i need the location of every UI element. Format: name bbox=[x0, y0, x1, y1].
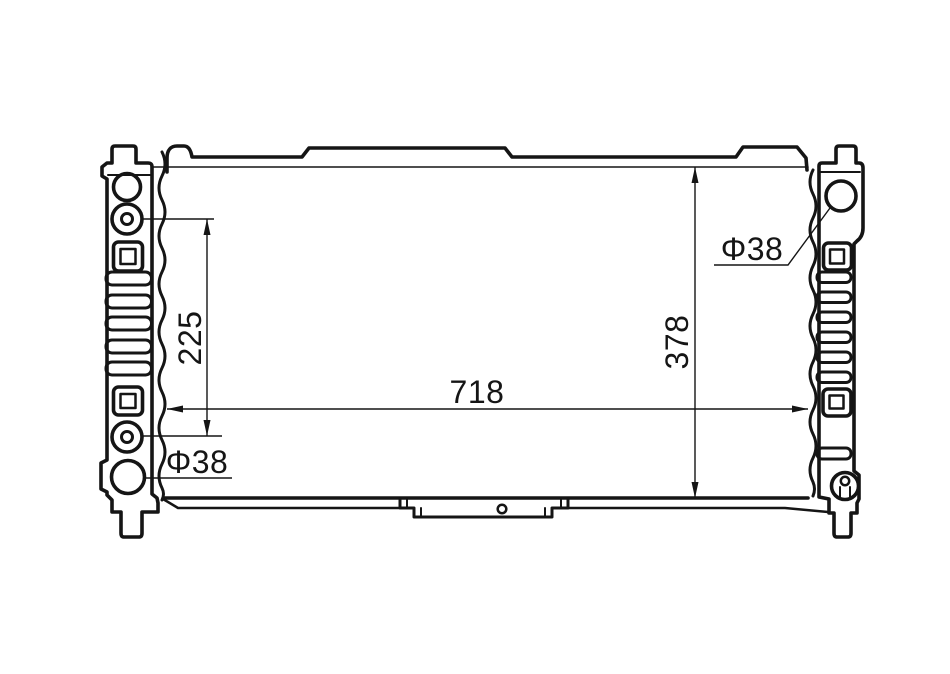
left-lower-fitting bbox=[114, 387, 143, 415]
filler-port-circle bbox=[114, 174, 141, 201]
left-upper-fitting bbox=[114, 242, 143, 271]
arrow-down-icon bbox=[204, 420, 211, 436]
arrow-up-icon bbox=[692, 167, 699, 183]
dimension-225: 225 bbox=[143, 219, 222, 436]
dimension-378: 378 bbox=[659, 167, 699, 498]
left-tank-rib bbox=[106, 362, 152, 375]
left-upper-port-inner bbox=[122, 214, 133, 225]
right-tank-rib bbox=[817, 272, 851, 283]
left-lower-fitting-inner bbox=[121, 394, 136, 408]
right-tank-rib bbox=[817, 312, 851, 323]
left-tank-rib bbox=[106, 272, 152, 285]
left-tank-rib bbox=[106, 317, 152, 330]
dim-label-378: 378 bbox=[659, 315, 695, 370]
drain-cock-inner bbox=[841, 477, 849, 485]
right-tank-rib bbox=[817, 332, 851, 343]
right-lower-fitting bbox=[823, 389, 851, 416]
right-tank-rib bbox=[817, 292, 851, 303]
left-tank-rib bbox=[106, 295, 152, 308]
left-outlet-port bbox=[112, 461, 145, 494]
core-bottom-plate bbox=[163, 499, 828, 512]
dim-label-phi38-upper: Φ38 bbox=[721, 231, 784, 267]
right-tank-rib bbox=[817, 352, 851, 363]
left-tank-rib bbox=[106, 340, 152, 353]
left-lower-port bbox=[112, 422, 142, 452]
arrow-left-icon bbox=[167, 406, 183, 413]
left-upper-port bbox=[112, 204, 142, 234]
callout-phi38-lower: Φ38 bbox=[144, 444, 232, 480]
right-upper-fitting-inner bbox=[830, 250, 844, 264]
right-tank-rib bbox=[817, 448, 851, 459]
left-upper-fitting-inner bbox=[121, 249, 136, 264]
drawing-canvas: 225 718 378 Φ38 Φ38 bbox=[0, 0, 950, 674]
core-top-edge bbox=[167, 146, 807, 172]
right-side-plate bbox=[810, 170, 816, 496]
arrow-up-icon bbox=[204, 219, 211, 235]
radiator-technical-drawing: 225 718 378 Φ38 Φ38 bbox=[0, 0, 950, 674]
dim-label-718: 718 bbox=[450, 374, 505, 410]
right-lower-fitting-inner bbox=[830, 396, 844, 409]
right-tank bbox=[817, 146, 863, 537]
radiator-core bbox=[153, 146, 828, 517]
dim-label-phi38-lower: Φ38 bbox=[166, 444, 229, 480]
right-inlet-port bbox=[826, 181, 856, 211]
dim-label-225: 225 bbox=[172, 311, 208, 366]
dimension-718: 718 bbox=[167, 374, 808, 413]
right-upper-fitting bbox=[824, 243, 852, 270]
bottom-mount-bracket bbox=[400, 499, 568, 517]
left-side-plate bbox=[159, 152, 165, 500]
arrow-down-icon bbox=[692, 482, 699, 498]
left-lower-port-inner bbox=[122, 432, 133, 443]
bottom-mount-bracket-detail bbox=[407, 499, 561, 517]
right-tank-rib bbox=[817, 372, 851, 383]
bottom-bracket-hole bbox=[498, 505, 507, 514]
arrow-right-icon bbox=[792, 406, 808, 413]
